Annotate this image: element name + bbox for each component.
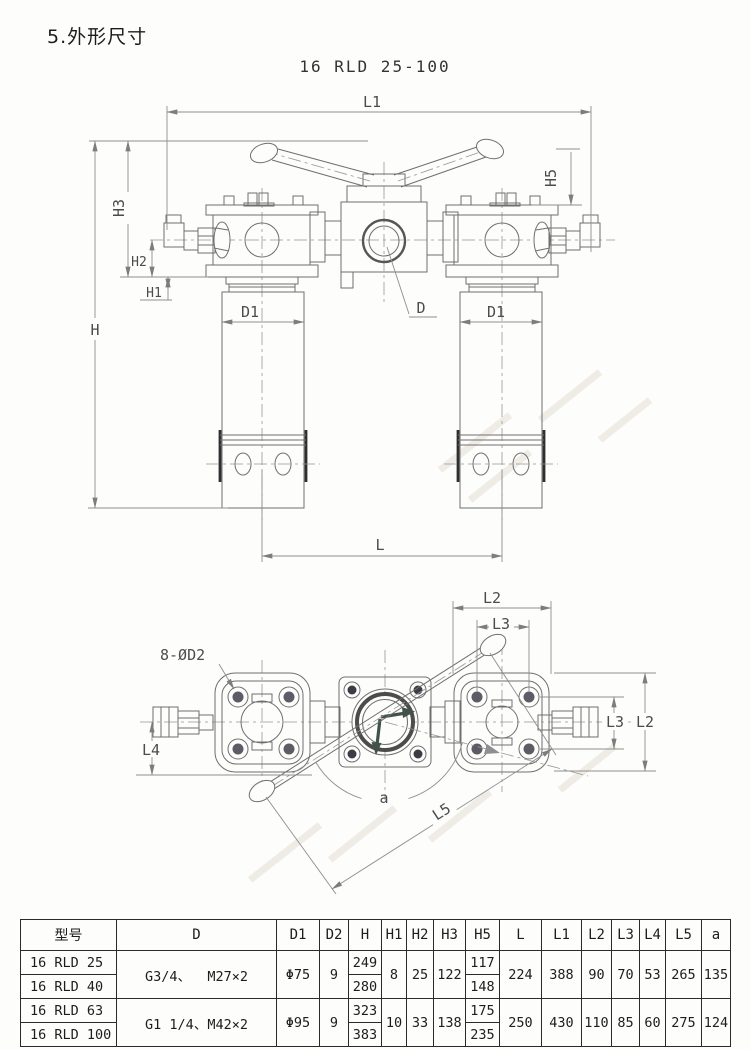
dim-label-l2-top: L2 [483, 589, 501, 607]
dim-label-h: H [90, 321, 99, 339]
front-dimensions: L1 H H3 H2 H1 H5 [86, 93, 591, 562]
dimension-spec-table: 型号 D D1 D2 H H1 H2 H3 H5 L L1 L2 L3 L4 L… [20, 919, 731, 1047]
l3-cell: 70 [612, 951, 640, 999]
h-cell: 323 [349, 999, 382, 1023]
col-header-h: H [349, 920, 382, 951]
h-cell: 280 [349, 975, 382, 999]
table-row: 16 RLD 25 G3/4、 M27×2 Φ75 9 249 8 25 122… [21, 951, 731, 975]
top-view: a 8-ØD2 L2 L3 L3 [136, 589, 658, 894]
l5-cell: 275 [666, 999, 702, 1047]
h5-cell: 235 [466, 1023, 500, 1047]
dim-label-h3: H3 [110, 199, 128, 217]
dim-label-l1: L1 [363, 93, 381, 111]
h1-cell: 8 [382, 951, 407, 999]
l2-cell: 90 [582, 951, 612, 999]
dim-label-h1: H1 [146, 286, 162, 301]
left-bowl [206, 292, 320, 508]
col-header-h2: H2 [407, 920, 434, 951]
dim-label-l3-right: L3 [606, 713, 624, 731]
dim-label-d1-left: D1 [241, 303, 259, 321]
h5-cell: 148 [466, 975, 500, 999]
model-cell: 16 RLD 100 [21, 1023, 117, 1047]
dim-label-d1-right: D1 [487, 303, 505, 321]
col-header-h3: H3 [434, 920, 466, 951]
right-drain-valve [534, 215, 600, 258]
l2-cell: 110 [582, 999, 612, 1047]
col-header-a: a [702, 920, 731, 951]
table-row: 16 RLD 63 G1 1/4、M42×2 Φ95 9 323 10 33 1… [21, 999, 731, 1023]
model-cell: 16 RLD 63 [21, 999, 117, 1023]
dimension-drawing: L1 H H3 H2 H1 H5 [0, 0, 750, 915]
model-cell: 16 RLD 25 [21, 951, 117, 975]
col-header-d1: D1 [277, 920, 320, 951]
l1-cell: 388 [542, 951, 582, 999]
col-header-d2: D2 [320, 920, 349, 951]
dim-label-l2-right: L2 [636, 713, 654, 731]
table-header-row: 型号 D D1 D2 H H1 H2 H3 H5 L L1 L2 L3 L4 L… [21, 920, 731, 951]
h-cell: 383 [349, 1023, 382, 1047]
col-header-l4: L4 [640, 920, 666, 951]
l1-cell: 430 [542, 999, 582, 1047]
col-header-l1: L1 [542, 920, 582, 951]
h5-cell: 175 [466, 999, 500, 1023]
swing-angle: a [316, 743, 463, 807]
col-header-l: L [500, 920, 542, 951]
d1-cell: Φ75 [277, 951, 320, 999]
handle-right-arm [394, 136, 506, 187]
l-cell: 250 [500, 999, 542, 1047]
a-cell: 135 [702, 951, 731, 999]
h1-cell: 10 [382, 999, 407, 1047]
dim-label-h5: H5 [542, 169, 560, 187]
col-header-h5: H5 [466, 920, 500, 951]
h5-cell: 117 [466, 951, 500, 975]
a-cell: 124 [702, 999, 731, 1047]
l4-cell: 60 [640, 999, 666, 1047]
dim-label-l3-top: L3 [492, 615, 510, 633]
dim-label-d: D [416, 299, 425, 317]
left-drain-valve [164, 215, 230, 258]
bolt-callout: 8-ØD2 [160, 646, 205, 664]
d1-cell: Φ95 [277, 999, 320, 1047]
l5-cell: 265 [666, 951, 702, 999]
col-header-l5: L5 [666, 920, 702, 951]
h2-cell: 25 [407, 951, 434, 999]
d2-cell: 9 [320, 999, 349, 1047]
l4-cell: 53 [640, 951, 666, 999]
handle-left-arm [248, 140, 374, 187]
d-cell: G1 1/4、M42×2 [117, 999, 277, 1047]
d2-cell: 9 [320, 951, 349, 999]
col-header-d: D [117, 920, 277, 951]
col-header-l3: L3 [612, 920, 640, 951]
h3-cell: 122 [434, 951, 466, 999]
l-cell: 224 [500, 951, 542, 999]
dim-label-a: a [379, 789, 388, 807]
left-flange [215, 673, 310, 772]
l3-cell: 85 [612, 999, 640, 1047]
dim-label-h2: H2 [131, 255, 147, 270]
d-cell: G3/4、 M27×2 [117, 951, 277, 999]
h3-cell: 138 [434, 999, 466, 1047]
h2-cell: 33 [407, 999, 434, 1047]
h-cell: 249 [349, 951, 382, 975]
dim-label-l4: L4 [142, 741, 160, 759]
model-cell: 16 RLD 40 [21, 975, 117, 999]
col-header-model: 型号 [21, 920, 117, 951]
front-view: L1 H H3 H2 H1 H5 [86, 93, 615, 562]
col-header-h1: H1 [382, 920, 407, 951]
dim-label-l: L [375, 536, 384, 554]
col-header-l2: L2 [582, 920, 612, 951]
